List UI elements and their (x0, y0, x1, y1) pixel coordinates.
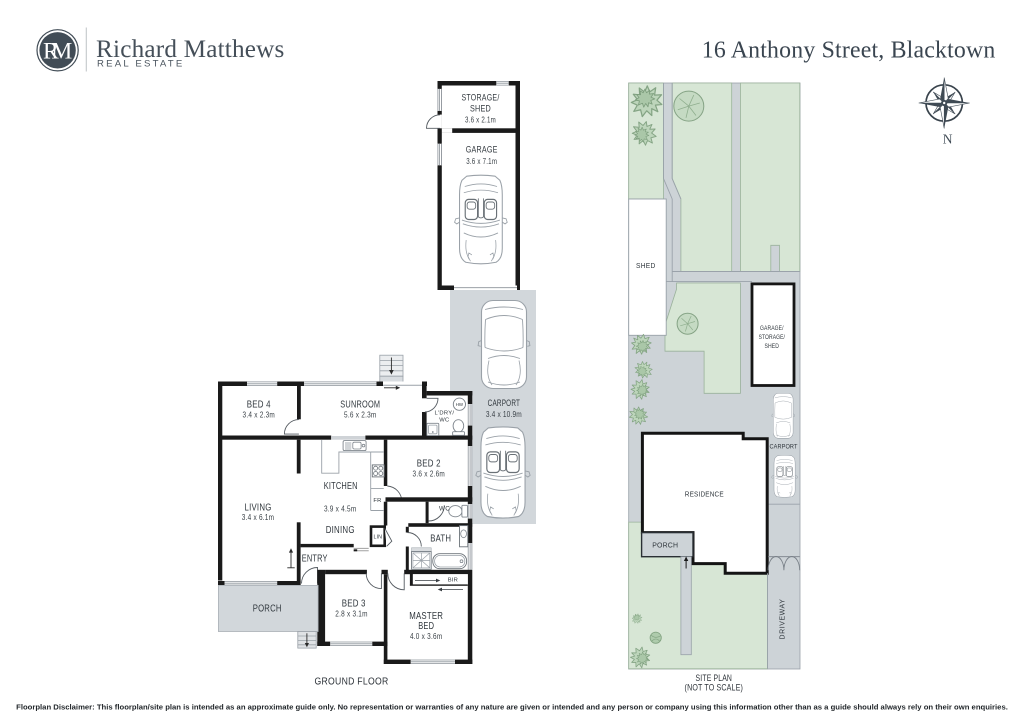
svg-text:GARAGE/: GARAGE/ (760, 325, 784, 332)
svg-text:3.4 x 6.1m: 3.4 x 6.1m (242, 513, 275, 522)
svg-text:GARAGE: GARAGE (466, 145, 498, 155)
svg-text:L'DRY/: L'DRY/ (434, 410, 454, 416)
svg-text:CARPORT: CARPORT (488, 398, 521, 409)
svg-text:BED 2: BED 2 (417, 459, 441, 470)
svg-text:ENTRY: ENTRY (302, 554, 328, 565)
svg-text:3.4 x 10.9m: 3.4 x 10.9m (486, 410, 522, 419)
svg-text:REAL ESTATE: REAL ESTATE (97, 58, 184, 69)
svg-text:GROUND FLOOR: GROUND FLOOR (315, 677, 389, 688)
svg-text:DRIVEWAY: DRIVEWAY (780, 599, 787, 640)
svg-text:SHED: SHED (636, 261, 656, 270)
svg-text:3.4 x 2.3m: 3.4 x 2.3m (243, 411, 276, 420)
svg-text:BIR: BIR (448, 577, 458, 583)
svg-text:SHED: SHED (765, 343, 780, 350)
svg-text:M: M (51, 39, 72, 65)
svg-text:RESIDENCE: RESIDENCE (685, 489, 724, 498)
svg-text:3.6 x 2.6m: 3.6 x 2.6m (413, 470, 446, 479)
svg-text:PORCH: PORCH (652, 541, 678, 550)
svg-text:PORCH: PORCH (253, 604, 282, 615)
svg-text:3.6 x 7.1m: 3.6 x 7.1m (466, 157, 497, 166)
svg-text:BATH: BATH (430, 533, 451, 544)
svg-text:3.9 x 4.5m: 3.9 x 4.5m (324, 504, 357, 513)
svg-text:16 Anthony Street, Blacktown: 16 Anthony Street, Blacktown (702, 38, 996, 64)
svg-text:3.6 x 2.1m: 3.6 x 2.1m (465, 116, 496, 125)
svg-text:STORAGE/: STORAGE/ (759, 334, 785, 341)
svg-text:SUNROOM: SUNROOM (340, 400, 380, 411)
svg-text:LIVING: LIVING (245, 502, 272, 513)
svg-text:KITCHEN: KITCHEN (324, 481, 358, 492)
svg-text:(NOT TO SCALE): (NOT TO SCALE) (685, 683, 744, 693)
svg-text:WC: WC (439, 417, 449, 423)
svg-text:N: N (943, 132, 953, 147)
svg-text:Floorplan Disclaimer: This flo: Floorplan Disclaimer: This floorplan/sit… (16, 702, 1008, 711)
svg-text:BED: BED (418, 621, 434, 632)
svg-text:WC: WC (439, 505, 450, 512)
svg-text:LIN: LIN (374, 534, 383, 540)
svg-text:STORAGE/: STORAGE/ (462, 93, 500, 103)
svg-text:FR: FR (373, 498, 381, 504)
svg-text:SHED: SHED (470, 103, 491, 113)
svg-text:5.6 x 2.3m: 5.6 x 2.3m (344, 411, 377, 420)
svg-text:SITE PLAN: SITE PLAN (696, 673, 733, 683)
svg-text:2.8 x 3.1m: 2.8 x 3.1m (335, 610, 368, 619)
svg-text:4.0 x 3.6m: 4.0 x 3.6m (410, 632, 443, 641)
svg-text:BED 4: BED 4 (247, 400, 271, 411)
svg-text:HW: HW (456, 402, 464, 407)
svg-text:CARPORT: CARPORT (770, 443, 798, 450)
svg-text:BED 3: BED 3 (342, 599, 366, 610)
svg-text:DINING: DINING (326, 525, 355, 536)
